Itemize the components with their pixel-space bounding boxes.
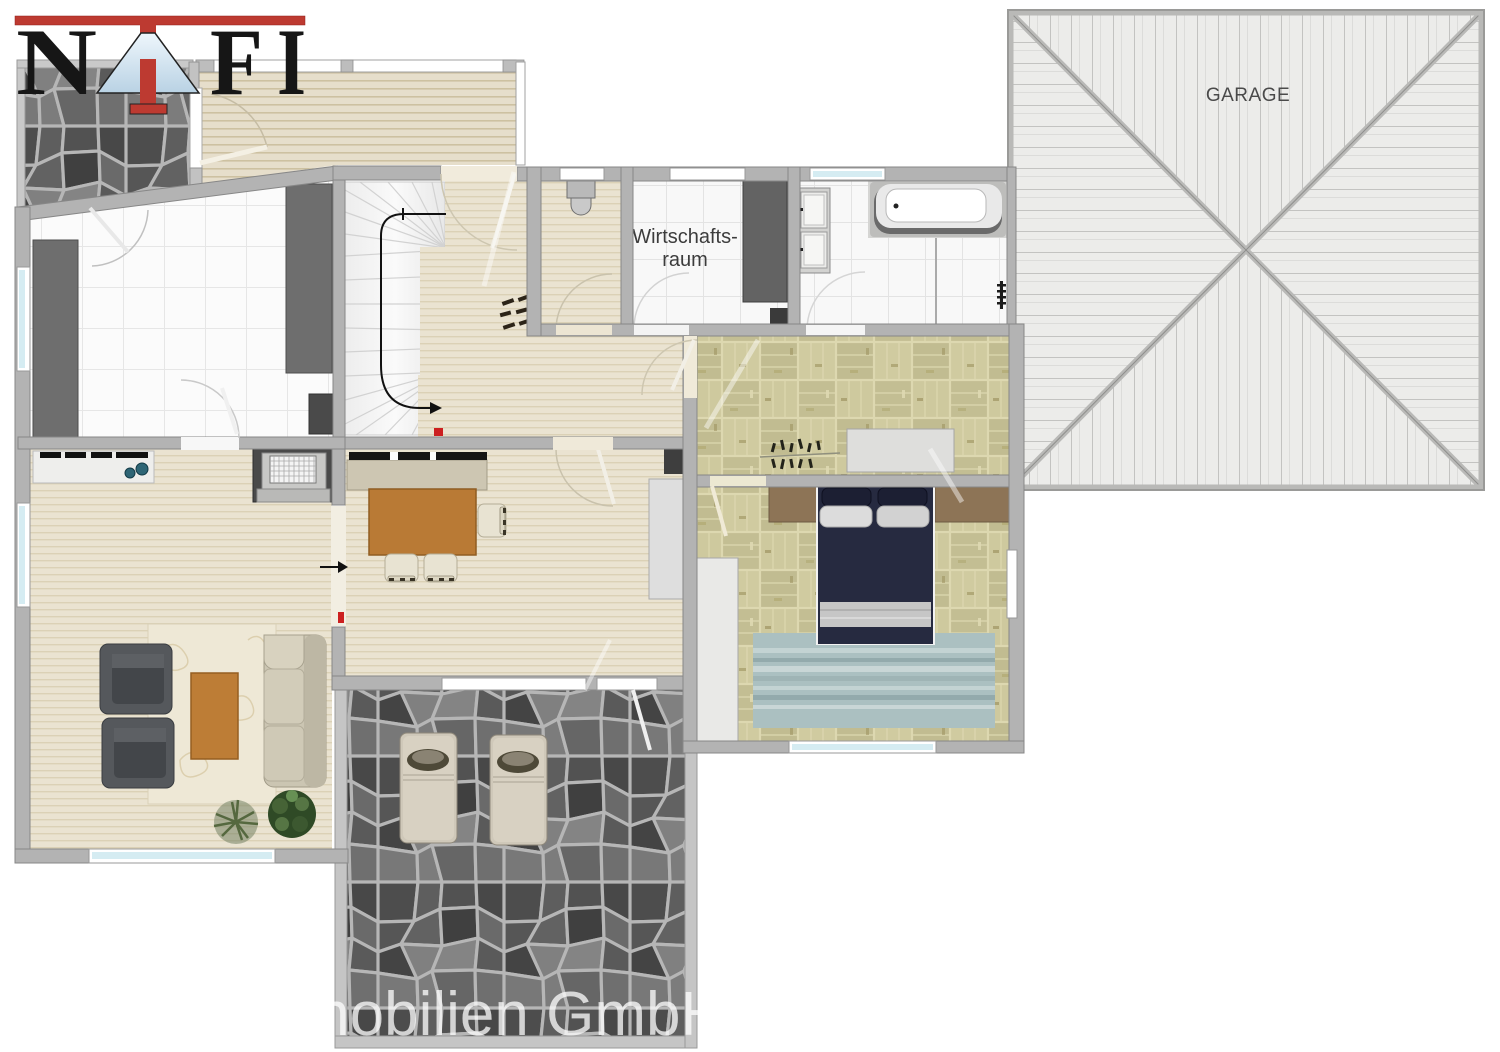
svg-text:Wirtschafts-: Wirtschafts- xyxy=(632,226,738,248)
svg-text:I: I xyxy=(277,9,306,115)
svg-text:F: F xyxy=(210,9,263,115)
svg-text:raum: raum xyxy=(662,249,708,271)
svg-text:GARAGE: GARAGE xyxy=(1206,85,1290,106)
svg-text:mobilien GmbH: mobilien GmbH xyxy=(298,980,725,1049)
svg-text:N: N xyxy=(16,9,97,115)
